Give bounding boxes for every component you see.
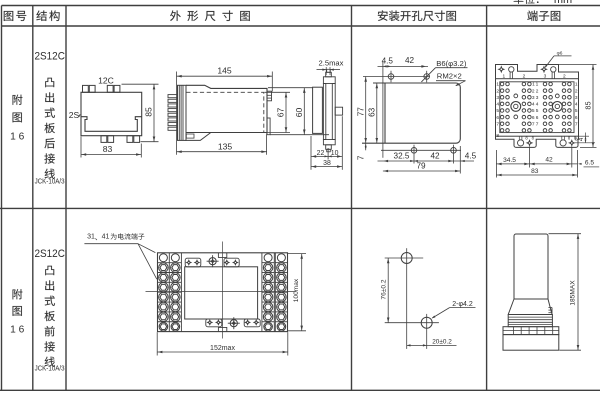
svg-text:3: 3 bbox=[575, 95, 578, 101]
svg-text:76±0.2: 76±0.2 bbox=[381, 279, 388, 299]
svg-text:33: 33 bbox=[532, 95, 540, 101]
svg-text:mm: mm bbox=[554, 0, 572, 6]
svg-text:85: 85 bbox=[583, 101, 592, 109]
svg-text:11: 11 bbox=[532, 82, 539, 88]
svg-text:152max: 152max bbox=[210, 345, 235, 352]
svg-text:1: 1 bbox=[575, 82, 578, 88]
svg-text:10: 10 bbox=[331, 150, 339, 157]
svg-text:4.5: 4.5 bbox=[382, 56, 394, 65]
svg-text:77: 77 bbox=[532, 121, 540, 127]
svg-text:6: 6 bbox=[575, 115, 578, 121]
svg-text:2S12C: 2S12C bbox=[34, 248, 65, 260]
svg-text:77: 77 bbox=[356, 107, 365, 117]
svg-text:1 6: 1 6 bbox=[10, 131, 24, 142]
svg-text:41: 41 bbox=[102, 234, 110, 241]
svg-text:2S12C: 2S12C bbox=[34, 50, 65, 62]
svg-text:63: 63 bbox=[368, 107, 377, 117]
svg-text:22: 22 bbox=[317, 150, 325, 157]
svg-text:7: 7 bbox=[496, 121, 499, 127]
svg-text:2S: 2S bbox=[69, 110, 80, 120]
svg-text:5: 5 bbox=[575, 108, 578, 114]
svg-text:2: 2 bbox=[575, 88, 578, 94]
svg-text:3: 3 bbox=[544, 73, 547, 79]
svg-text:2: 2 bbox=[496, 88, 499, 94]
svg-text:31: 31 bbox=[87, 234, 95, 241]
svg-text:4: 4 bbox=[575, 102, 578, 108]
svg-text:12C: 12C bbox=[98, 75, 114, 85]
svg-text:42: 42 bbox=[545, 157, 553, 164]
svg-text:83: 83 bbox=[531, 168, 539, 175]
svg-text:2.5max: 2.5max bbox=[319, 59, 344, 68]
svg-text:4: 4 bbox=[496, 102, 499, 108]
svg-text:60: 60 bbox=[294, 108, 304, 118]
svg-text:RM2×2: RM2×2 bbox=[437, 72, 462, 81]
svg-text:67: 67 bbox=[276, 108, 286, 118]
svg-text:44: 44 bbox=[532, 102, 540, 108]
svg-text:6.5: 6.5 bbox=[585, 160, 594, 167]
svg-text:66: 66 bbox=[532, 115, 540, 121]
svg-text:20±0.2: 20±0.2 bbox=[432, 338, 452, 345]
svg-text:55: 55 bbox=[532, 108, 540, 114]
svg-text:145: 145 bbox=[217, 66, 232, 76]
svg-text:85: 85 bbox=[144, 107, 154, 117]
svg-text:42: 42 bbox=[430, 151, 440, 160]
svg-text:JCK-10A/3: JCK-10A/3 bbox=[35, 176, 65, 185]
svg-text:22: 22 bbox=[532, 88, 540, 94]
svg-text:1: 1 bbox=[502, 73, 505, 79]
svg-text:2: 2 bbox=[563, 73, 566, 79]
svg-text:5: 5 bbox=[496, 108, 499, 114]
svg-text:185MAX: 185MAX bbox=[570, 280, 577, 306]
svg-text:1: 1 bbox=[496, 82, 499, 88]
svg-text:2: 2 bbox=[523, 73, 526, 79]
svg-text:34.5: 34.5 bbox=[503, 157, 516, 164]
svg-text:32.5: 32.5 bbox=[394, 152, 410, 161]
svg-text:7: 7 bbox=[356, 155, 365, 160]
svg-text:8: 8 bbox=[496, 133, 499, 139]
svg-text:42: 42 bbox=[405, 56, 415, 65]
svg-text:100max: 100max bbox=[293, 278, 300, 302]
svg-text:4.5: 4.5 bbox=[465, 151, 477, 160]
svg-text:79: 79 bbox=[416, 162, 426, 171]
svg-text:6: 6 bbox=[496, 115, 499, 121]
svg-text:7: 7 bbox=[575, 121, 578, 127]
svg-text:83: 83 bbox=[103, 144, 113, 154]
svg-text:1 6: 1 6 bbox=[10, 324, 24, 335]
svg-text:JCK-10A/3: JCK-10A/3 bbox=[35, 363, 65, 372]
svg-text:3: 3 bbox=[496, 95, 499, 101]
svg-text:38: 38 bbox=[323, 160, 331, 167]
svg-text:B6(φ3.2): B6(φ3.2) bbox=[436, 59, 467, 68]
svg-text:2-φ4.2: 2-φ4.2 bbox=[452, 301, 473, 308]
svg-text:135: 135 bbox=[218, 141, 233, 151]
